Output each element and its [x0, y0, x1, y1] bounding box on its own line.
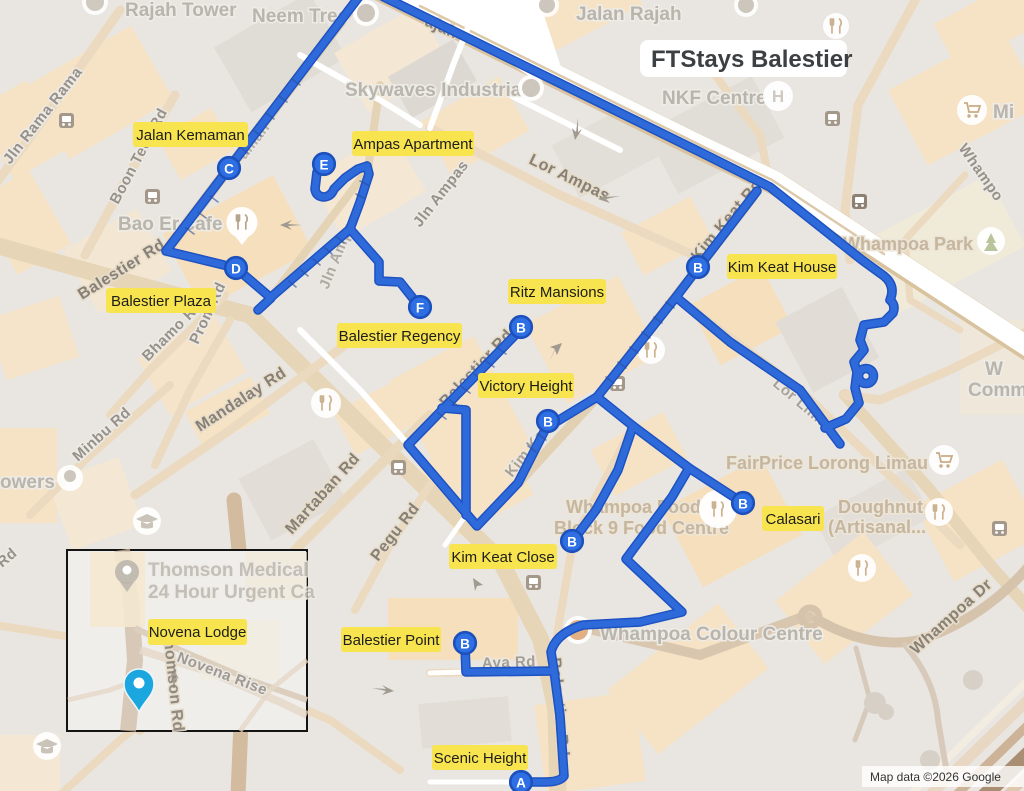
svg-text:Mi: Mi — [993, 102, 1014, 123]
svg-text:Bao Er cafe: Bao Er cafe — [118, 214, 223, 235]
svg-text:Whampoa Food: Whampoa Food — [566, 497, 701, 517]
svg-text:Kim Keat Close: Kim Keat Close — [451, 549, 554, 566]
svg-text:owers: owers — [0, 472, 55, 493]
svg-text:Victory Height: Victory Height — [479, 378, 573, 395]
svg-text:Balestier Point: Balestier Point — [343, 632, 441, 649]
svg-text:Ritz Mansions: Ritz Mansions — [510, 284, 604, 301]
svg-text:Calasari: Calasari — [765, 511, 820, 528]
svg-text:C: C — [224, 162, 234, 177]
svg-text:F: F — [416, 301, 424, 316]
svg-text:B: B — [460, 637, 470, 652]
svg-text:D: D — [231, 262, 241, 277]
svg-text:Jalan Rajah: Jalan Rajah — [576, 4, 682, 25]
svg-text:NKF Centre: NKF Centre — [662, 88, 767, 109]
svg-text:FairPrice Lorong Limau: FairPrice Lorong Limau — [726, 453, 928, 473]
svg-text:E: E — [319, 158, 328, 173]
svg-text:Kim Keat House: Kim Keat House — [728, 259, 836, 276]
svg-text:Balestier Plaza: Balestier Plaza — [111, 293, 212, 310]
svg-text:24 Hour Urgent Ca: 24 Hour Urgent Ca — [148, 582, 315, 603]
svg-text:Whampoa Park: Whampoa Park — [843, 234, 974, 254]
svg-text:B: B — [693, 261, 703, 276]
svg-text:Jalan Kemaman: Jalan Kemaman — [136, 127, 244, 144]
svg-text:Scenic Height: Scenic Height — [434, 750, 527, 767]
svg-text:Map data ©2026 Google: Map data ©2026 Google — [870, 770, 1001, 784]
svg-text:Commu: Commu — [968, 380, 1024, 401]
svg-text:B: B — [738, 497, 748, 512]
svg-text:B: B — [543, 415, 553, 430]
svg-text:W: W — [985, 359, 1003, 380]
svg-text:Rajah Tower: Rajah Tower — [125, 0, 237, 21]
svg-text:Doughnut: Doughnut — [838, 497, 923, 517]
svg-text:Novena Lodge: Novena Lodge — [149, 624, 247, 641]
svg-text:Thomson Medical: Thomson Medical — [148, 560, 308, 581]
svg-text:A: A — [516, 776, 526, 791]
svg-text:B: B — [567, 535, 577, 550]
svg-text:Skywaves Industrial: Skywaves Industrial — [345, 80, 527, 101]
svg-text:FTStays Balestier: FTStays Balestier — [651, 46, 852, 73]
svg-text:Balestier Regency: Balestier Regency — [339, 328, 461, 345]
svg-text:H: H — [772, 87, 784, 106]
svg-text:B: B — [516, 321, 526, 336]
svg-text:Ampas Apartment: Ampas Apartment — [353, 136, 473, 153]
svg-text:(Artisanal...: (Artisanal... — [828, 517, 926, 537]
